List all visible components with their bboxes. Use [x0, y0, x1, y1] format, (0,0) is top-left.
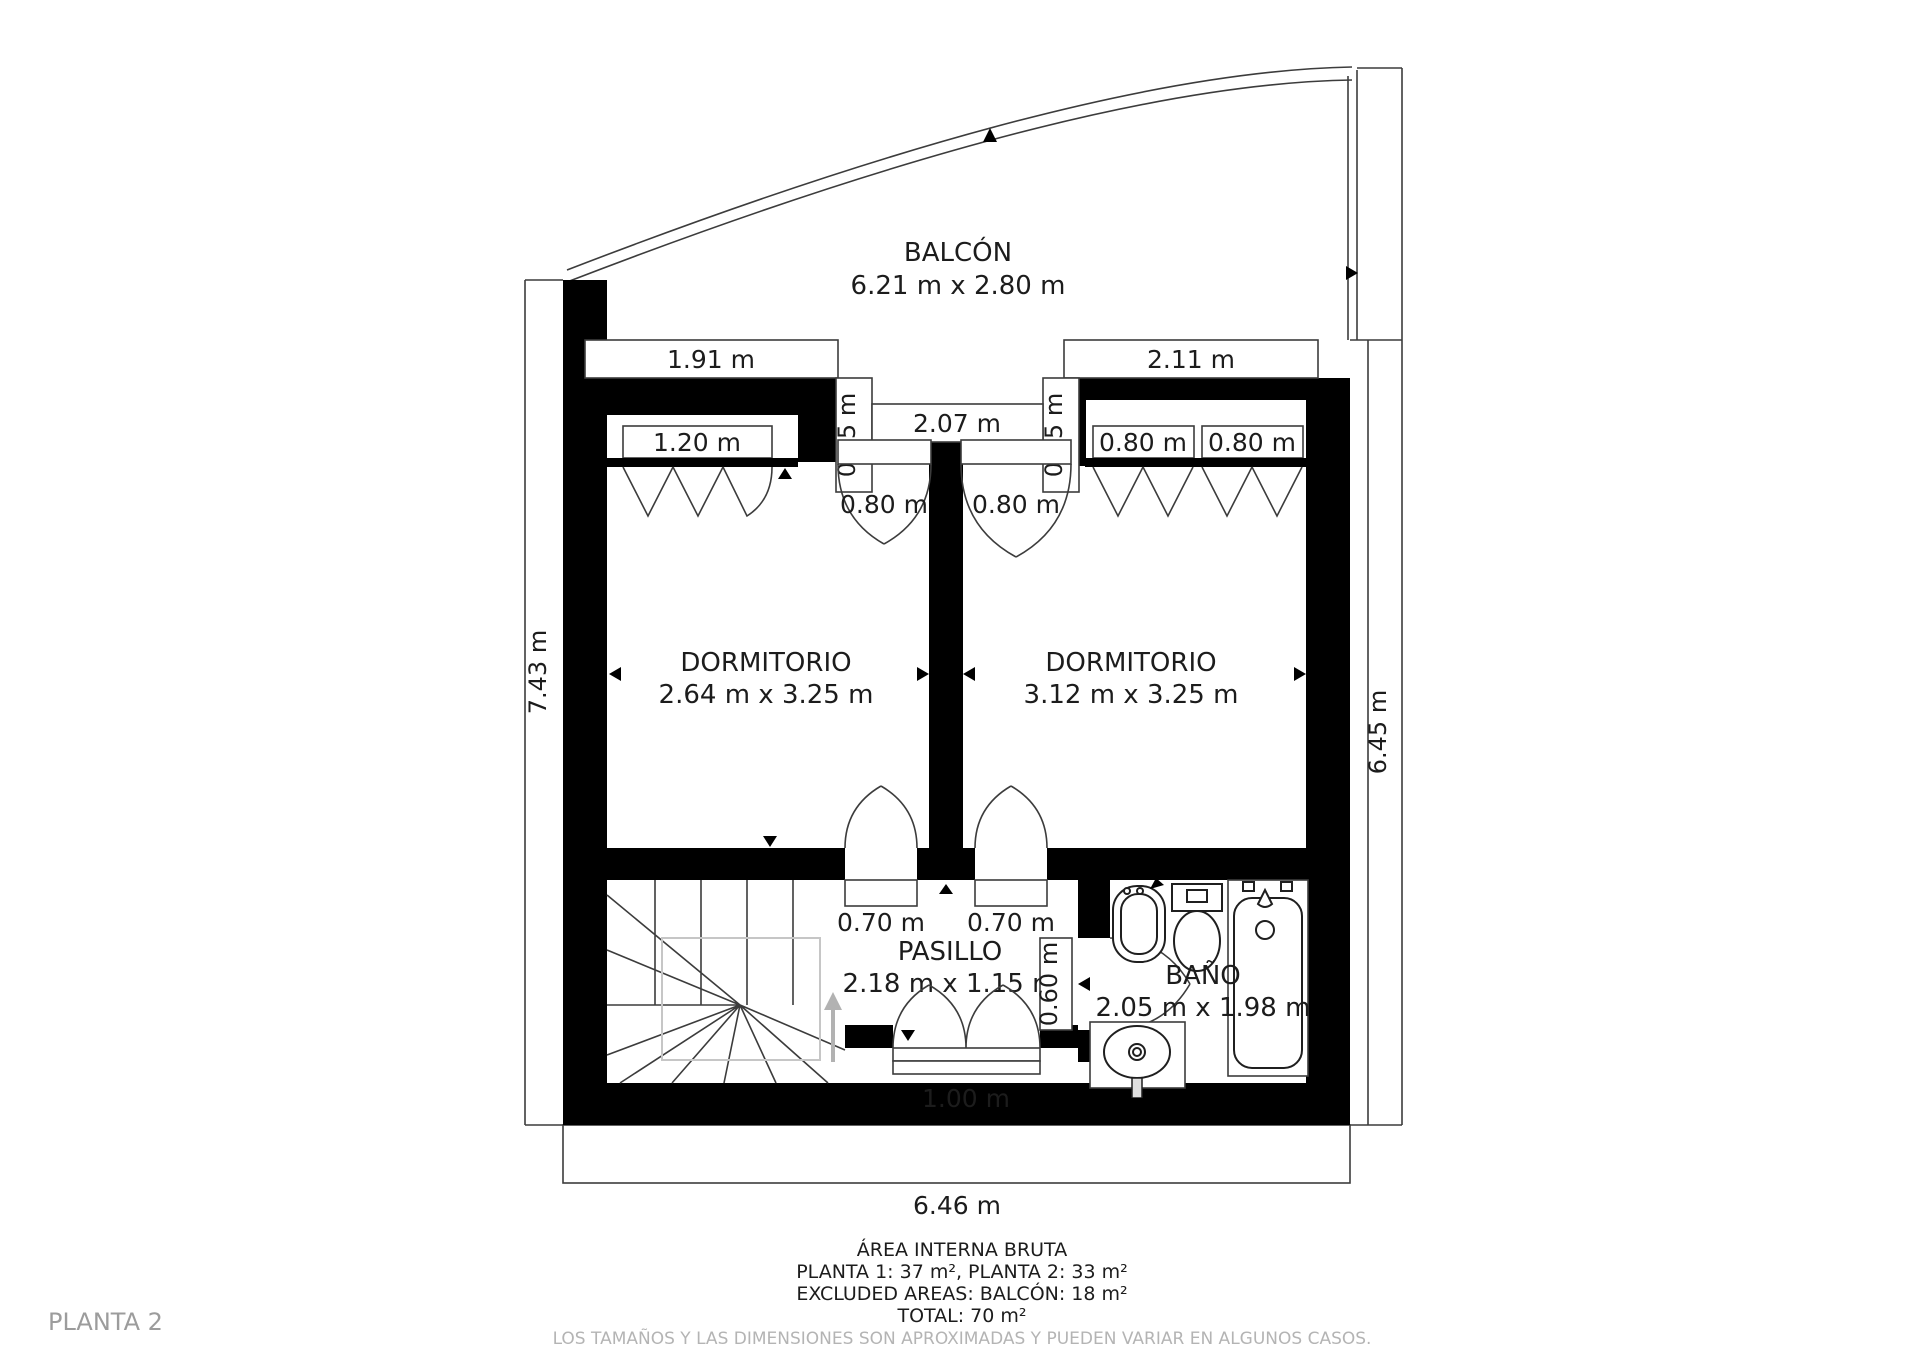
bedroom-left-dims: 2.64 m x 3.25 m [659, 680, 874, 710]
wall-hall-bottom-left [845, 1025, 893, 1048]
arrow-left-divider [963, 667, 975, 681]
stair-rail [662, 938, 820, 1060]
closet-left: 1.20 m [607, 426, 798, 516]
bidet-tap-b [1137, 888, 1143, 894]
toilet-button [1187, 890, 1207, 902]
floor-plan-page: BALCÓN 6.21 m x 2.80 m 7.43 m 6.45 m 6.4… [0, 0, 1920, 1357]
arrow-down-bedroom-left [763, 836, 777, 847]
bathroom: 0.60 m BAÑO 2.05 m x 1.98 m [1035, 878, 1316, 1112]
footer-disclaimer: LOS TAMAÑOS Y LAS DIMENSIONES SON APROXI… [553, 1327, 1372, 1349]
balcony-label: BALCÓN 6.21 m x 2.80 m [851, 236, 1066, 301]
dim-closet-right-2: 0.80 m [1208, 428, 1296, 457]
arrow-up-hall [939, 884, 953, 894]
arrow-right-bedroom [1294, 667, 1306, 681]
hall-door-right-swing [975, 786, 1047, 848]
hall-door-left-swing [845, 786, 917, 848]
wall-bath-divider-top [1078, 880, 1110, 938]
bathroom-name: BAÑO [1165, 959, 1241, 991]
dim-bath-door: 0.60 m [1035, 942, 1063, 1026]
wall-hall-top-right [1047, 848, 1350, 880]
dim-top-wall-right: 2.11 m [1147, 345, 1235, 374]
bidet-tap-a [1124, 888, 1130, 894]
wall-hall-top-mid [917, 848, 975, 880]
floor-label: PLANTA 2 [48, 1308, 163, 1336]
footer-area-title: ÁREA INTERNA BRUTA [857, 1238, 1067, 1261]
bedroom-left-label: DORMITORIO 2.64 m x 3.25 m [659, 648, 874, 710]
stair-treads [607, 880, 845, 1083]
arrow-left-bath-door [1078, 977, 1090, 991]
balcony-door-right-leaf [961, 440, 1071, 464]
toilet [1172, 884, 1222, 971]
arrow-down-hall-door [901, 1030, 915, 1041]
dim-hall-door-right: 0.70 m [967, 908, 1055, 937]
footer-total-area: TOTAL: 70 m² [896, 1305, 1026, 1327]
hall-door-right-leaf [975, 880, 1047, 906]
stair-direction-arrow-head [824, 992, 842, 1010]
hall-bottom-door-leaf-b [893, 1061, 1040, 1074]
closet-right-front [1085, 458, 1306, 467]
closet-right: 0.80 m 0.80 m [1085, 426, 1306, 516]
arrow-left-bedroom [609, 667, 621, 681]
dim-balcony-opening: 2.07 m [913, 409, 1001, 438]
bathroom-dims: 2.05 m x 1.98 m [1096, 993, 1311, 1023]
bedroom-right-label: DORMITORIO 3.12 m x 3.25 m [1024, 648, 1239, 710]
bidet-bowl [1121, 894, 1157, 954]
hallway-dims: 2.18 m x 1.15 m [843, 969, 1058, 999]
dim-balcony-door-left: 0.80 m [840, 490, 928, 519]
arrow-right-divider [917, 667, 929, 681]
balcony-name: BALCÓN [904, 236, 1012, 268]
hall-door-left-leaf [845, 880, 917, 906]
bathtub-tap-a [1243, 882, 1254, 891]
dim-hall-door-left: 0.70 m [837, 908, 925, 937]
balcony-door-left-leaf [838, 440, 931, 464]
dim-left-total: 7.43 m [524, 630, 552, 714]
arrow-up-closet-left [778, 468, 792, 479]
sink-tap [1132, 1078, 1142, 1098]
footer-planta-areas: PLANTA 1: 37 m², PLANTA 2: 33 m² [796, 1261, 1128, 1283]
balcony-dims: 6.21 m x 2.80 m [851, 271, 1066, 301]
closet-right-doors [1093, 467, 1302, 516]
dim-right-total: 6.45 m [1364, 690, 1392, 774]
wall-closet-left-cap [798, 415, 838, 462]
dim-hall-bottom-door: 1.00 m [922, 1084, 1010, 1113]
wall-bedroom-divider [929, 442, 963, 880]
hallway-name: PASILLO [898, 937, 1002, 967]
bedroom-left-name: DORMITORIO [680, 648, 851, 678]
wall-right [1306, 378, 1350, 1125]
dim-closet-left: 1.20 m [653, 428, 741, 457]
bedroom-right-name: DORMITORIO [1045, 648, 1216, 678]
balcony-railing [567, 67, 1402, 369]
hall-bottom-door-leaf-a [893, 1048, 1040, 1061]
closet-left-doors [623, 467, 772, 516]
bottom-strip-box [563, 1125, 1350, 1183]
floor-plan-canvas: BALCÓN 6.21 m x 2.80 m 7.43 m 6.45 m 6.4… [0, 0, 1920, 1357]
closet-left-front [607, 458, 798, 467]
bathtub-tap-b [1281, 882, 1292, 891]
dim-top-wall-left: 1.91 m [667, 345, 755, 374]
bidet [1113, 878, 1165, 962]
stairs [607, 880, 845, 1083]
wall-hall-top-left [563, 848, 845, 880]
bathtub-drain [1256, 921, 1274, 939]
bedroom-right-dims: 3.12 m x 3.25 m [1024, 680, 1239, 710]
dim-balcony-door-right: 0.80 m [972, 490, 1060, 519]
footer: ÁREA INTERNA BRUTA PLANTA 1: 37 m², PLAN… [553, 1238, 1372, 1349]
dim-closet-right-1: 0.80 m [1099, 428, 1187, 457]
wall-balcony-front-left [563, 378, 845, 415]
dim-bottom-total: 6.46 m [913, 1191, 1001, 1220]
footer-excluded-areas: EXCLUDED AREAS: BALCÓN: 18 m² [796, 1281, 1127, 1305]
sink-drain-inner [1133, 1048, 1141, 1056]
wall-balcony-front-right [1072, 378, 1350, 400]
